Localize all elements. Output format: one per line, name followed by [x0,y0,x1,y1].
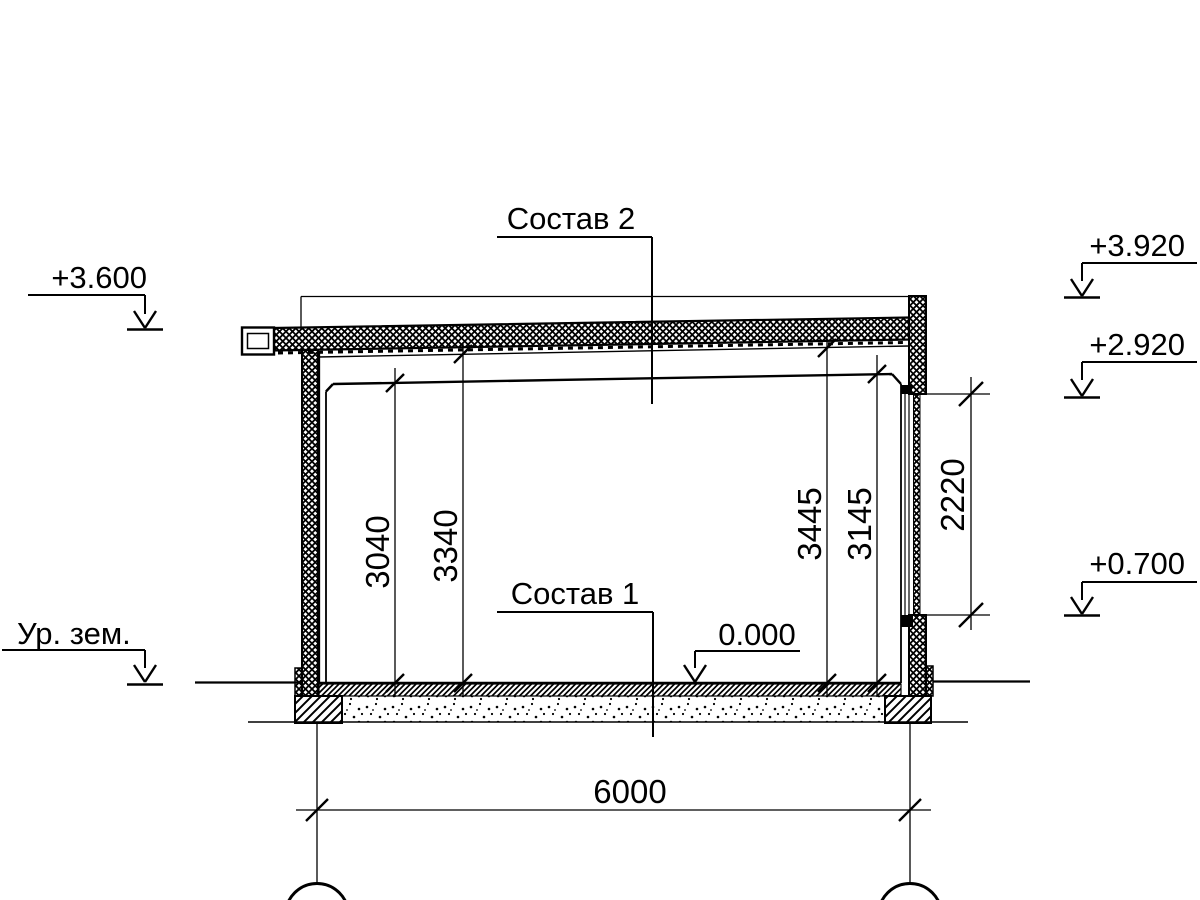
elevation-mark-beam-bottom [1064,362,1197,398]
window-section [901,385,920,627]
window-sill-block [901,615,913,627]
ground-and-floor-lines [195,682,1030,684]
ground-level-label: Ур. зем. [17,616,131,651]
dim-window-height-value: 2220 [934,458,971,531]
left-column-lines [320,353,327,683]
right-foundation [885,696,931,723]
eaves-gutter [242,328,274,355]
axis-bubble-right [879,884,942,900]
section-drawing: 6000 3040 3340 3445 3145 2220 Со [0,0,1200,900]
roof-slab [273,318,909,351]
window-glazing-band [914,394,921,615]
window-head-block [901,385,912,394]
elevation-mark-eaves-left [28,295,163,330]
elevation-window-sill-value: +0.700 [1089,546,1185,581]
elevation-floor-value: 0.000 [718,617,796,652]
elevation-parapet-value: +3.920 [1089,228,1185,263]
left-foundation [295,696,342,723]
elevation-eaves-left-value: +3.600 [51,260,147,295]
elevation-beam-bottom-value: +2.920 [1089,327,1185,362]
dim-clear-height-left-value: 3040 [359,515,396,588]
roof-composition-label: Состав 2 [507,201,636,236]
elevation-mark-floor [684,651,800,682]
elevation-mark-parapet [1064,263,1197,298]
drawing-sheet: 6000 3040 3340 3445 3145 2220 Со [0,0,1200,900]
elevation-mark-window-sill [1064,582,1197,616]
right-wall-below-sill [909,615,926,696]
dim-deck-height-left-value: 3340 [427,509,464,582]
dim-clear-height-right-value: 3145 [841,487,878,560]
ceiling-beam-line [326,374,901,392]
left-wall [302,350,318,696]
elevation-mark-ground [2,650,163,685]
right-parapet [909,296,926,394]
axis-bubble-left [286,884,349,900]
dim-deck-height-right-value: 3445 [791,487,828,560]
dim-span-value: 6000 [593,773,666,810]
right-wall-step [926,666,933,696]
floor-screed [319,684,901,696]
floor-composition-label: Состав 1 [511,576,640,611]
floor-underlay [342,696,885,722]
